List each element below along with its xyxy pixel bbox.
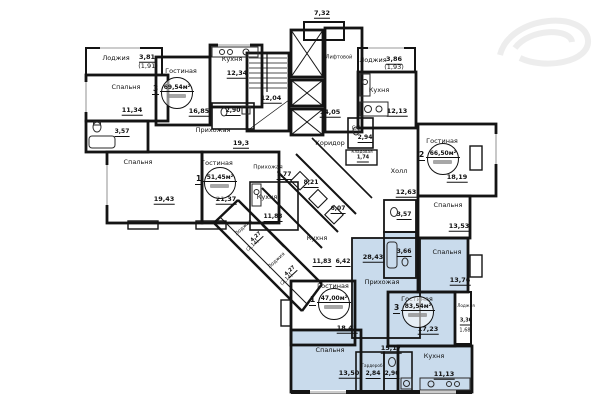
room-label: Спальня [433,249,462,256]
area-label: 8,21 [304,180,319,188]
area-label: 2,84 [366,371,381,379]
room-label: Лоджия [359,57,386,64]
area-label: 19,43 [154,196,175,205]
room-label: Кухня [222,56,242,63]
room-label: Прихожая [196,127,231,134]
stamp-divider [401,310,435,311]
area-label: 11,83 [264,214,283,222]
area-label: 2,94 [358,135,373,143]
area-label: 12,34 [227,70,248,79]
area-label: 18,41 [337,325,358,334]
room-label: Кладовая [351,150,372,154]
stamp-divider [160,91,194,92]
area-label: 6,42 [336,259,351,267]
area-label: 12,04 [261,95,282,104]
room-label: Кухня [424,353,444,360]
area-label: 2,90 [226,108,241,116]
room-label: Кухня [369,87,389,94]
stamp-divider [203,181,237,182]
stamp-divider [317,302,351,303]
stamp-total-area: 47,00м² [319,295,349,302]
stamp-subarea-smudge [433,160,452,164]
area-label: 14,05 [320,109,341,118]
stamp-circle [427,143,459,175]
room-label: Коридор [315,140,345,147]
area-label: 7,32 [314,10,330,19]
area-label: 3,66 [397,249,412,257]
area-label: 13,53 [449,223,470,232]
room-label: Гостиная [201,160,233,167]
room-label: Лифтовой [326,56,353,61]
stamp-circle [318,288,350,320]
stove-icon [360,102,388,116]
stamp-subarea-smudge [324,305,343,309]
area-label: 3,57 [115,129,130,137]
area-label: 2,90 [385,371,400,379]
room-label: Спальня [124,159,153,166]
stamp-room-count: 1 [195,174,202,185]
area-label: 12,13 [387,108,408,117]
area-label: 1,68 [459,329,470,334]
stamp-circle [204,167,236,199]
room-label: Лоджия [102,55,129,62]
stamp-circle [402,296,434,328]
stamp-circle [161,77,193,109]
stamp-total-area: 66,50м² [428,150,458,157]
elevator-shafts [291,30,323,135]
stamp-total-area: 69,54м² [162,84,192,91]
area-label: 11,13 [434,371,455,380]
stamp-subarea-smudge [210,184,229,188]
stamp-subarea-smudge [408,313,427,317]
room-label: Холл [391,168,408,175]
floor-plan-drawing [0,0,600,400]
area-label: 3,57 [397,212,412,220]
room-label: Спальня [434,202,463,209]
stamp-room-count: 1 [309,295,316,306]
room-label: Спальня [316,347,345,354]
room-label: Гардероб [361,364,382,368]
area-label: 7,77 [277,172,292,180]
area-label: 1,74 [357,156,369,163]
area-label: 19,3 [233,140,249,149]
room-label: Прихожая [365,279,400,286]
stamp-subarea-smudge [167,94,186,98]
area-label: 12,63 [396,189,417,198]
area-label: 15,17 [381,345,402,354]
room-label: Кухня [307,235,327,242]
area-label: 28,43 [363,254,384,263]
stamp-room-count: 2 [418,150,425,161]
stamp-divider [426,157,460,158]
area-label: 13,50 [339,370,360,379]
watermark-logo [500,21,588,64]
area-label: (1,91) [138,63,158,70]
area-label: 11,34 [122,107,143,116]
area-label: 6,07 [331,206,346,214]
stamp-room-count: 3 [393,303,400,314]
stamp-room-count: 3 [152,84,159,95]
toilet-icon [93,122,101,132]
room-label: Гостиная [165,68,197,75]
area-label: 18,19 [447,174,468,183]
area-label: (1,93) [384,64,404,71]
floor-plan-canvas: 7,32Лоджия3,81(1,91)Спальня11,34Гостиная… [0,0,600,400]
room-label: Лоджия [457,304,475,308]
area-label: 13,76 [450,277,471,286]
room-label: Кухня [257,194,277,201]
area-label: 16,85 [189,108,210,117]
room-label: С/У [352,127,360,132]
room-label: Спальня [112,84,141,91]
stamp-total-area: 83,54м² [403,303,433,310]
stamp-total-area: 51,45м² [205,174,235,181]
area-label: 11,83 [313,259,332,267]
room-label: Прихожая [253,165,282,171]
bathtub-icon [89,136,115,148]
area-label: 3,36 [460,319,472,326]
